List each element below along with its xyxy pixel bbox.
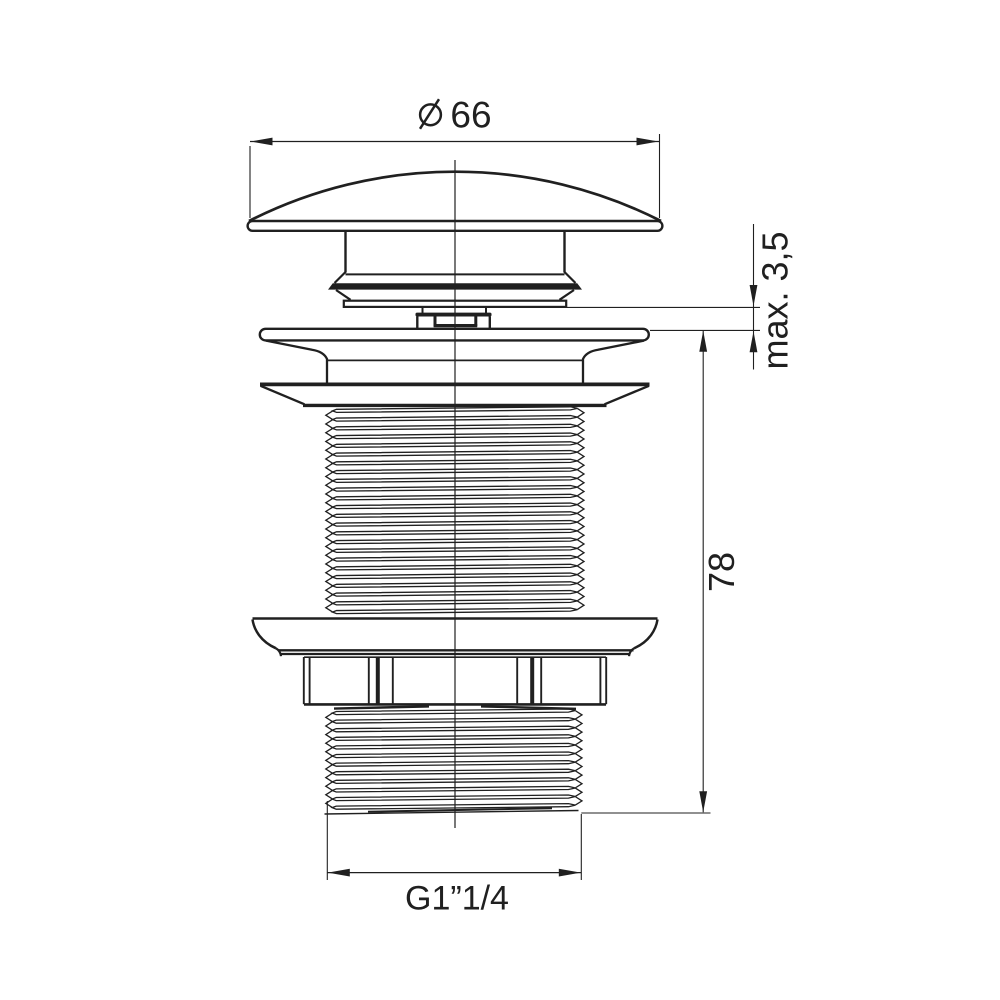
svg-text:78: 78 — [701, 552, 742, 592]
svg-text:max. 3,5: max. 3,5 — [755, 231, 796, 369]
svg-text:66: 66 — [450, 95, 491, 136]
svg-text:G1”1/4: G1”1/4 — [405, 880, 509, 918]
